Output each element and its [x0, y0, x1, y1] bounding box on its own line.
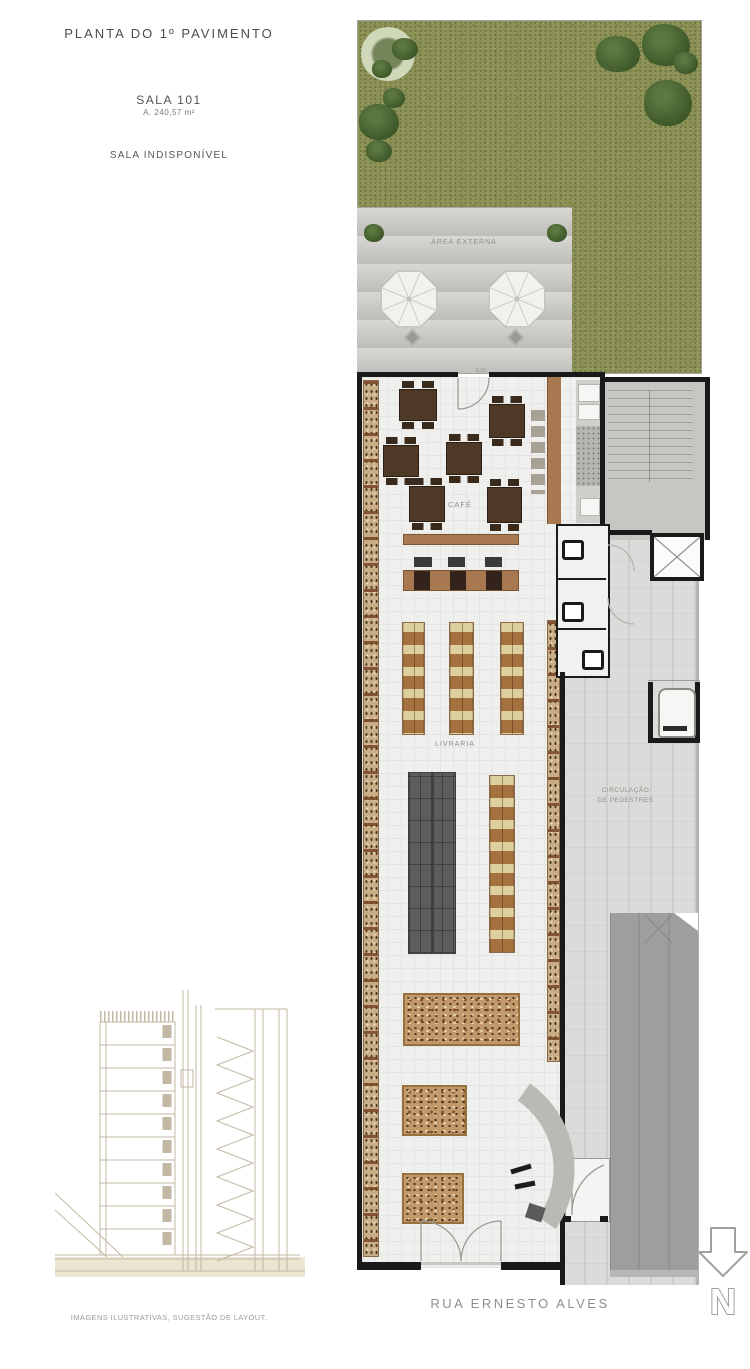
- door-arc: [608, 545, 634, 624]
- section-ground-fill: [55, 1257, 305, 1277]
- disclaimer-text: IMAGENS ILUSTRATIVAS, SUGESTÃO DE LAYOUT…: [38, 1313, 300, 1322]
- door-arc: [458, 378, 489, 409]
- section-ramp-lines: [55, 1193, 123, 1257]
- door-arc: [421, 1221, 461, 1261]
- section-right-walls: [255, 1009, 287, 1271]
- floor-plan-page: PLANTA DO 1º PAVIMENTO SALA 101 A. 240,5…: [0, 0, 750, 1369]
- street-name: RUA ERNESTO ALVES: [395, 1296, 645, 1311]
- door-arc: [461, 1221, 501, 1261]
- section-stairs-zigzag: [217, 1037, 253, 1261]
- north-arrow-icon: [699, 1228, 747, 1276]
- band-details: [645, 913, 698, 943]
- door-arc: [572, 1163, 604, 1215]
- ramp-treads: [511, 1166, 535, 1187]
- section-lines: [55, 990, 305, 1271]
- north-letter: N: [710, 1281, 736, 1322]
- north-arrow: N: [695, 1226, 750, 1322]
- section-core: [183, 990, 201, 1271]
- building-section-sketch: [55, 975, 335, 1285]
- curved-ramp: [511, 1092, 564, 1223]
- band-notch: [674, 913, 698, 931]
- door-swings: [421, 378, 634, 1261]
- band-cross: [645, 915, 672, 943]
